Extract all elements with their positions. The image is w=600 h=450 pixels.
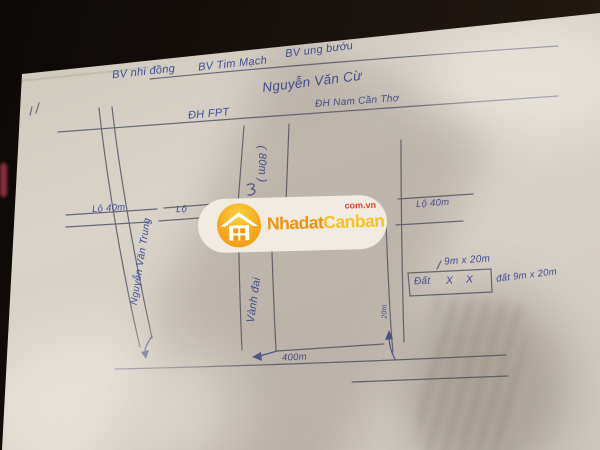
label-depth-20m: 20m (382, 297, 389, 327)
house-icon (216, 203, 261, 248)
watermark-brand-part1: Nhadat (267, 212, 324, 233)
label-lo-40m-left: Lộ 40m (92, 202, 126, 215)
watermark-brand: NhadatCanban (267, 211, 385, 235)
label-lo-40m-right: Lộ 40m (416, 197, 450, 210)
label-plot-x-marks: X X (446, 273, 479, 287)
paper-sheet: BV nhi đồng BV Tim Mạch BV ung bướu Nguy… (0, 0, 600, 450)
watermark-brand-part2: Canban (323, 211, 385, 233)
watermark-badge: NhadatCanban com.vn (197, 195, 387, 254)
photo-of-hand-drawn-land-map: BV nhi đồng BV Tim Mạch BV ung bướu Nguy… (0, 0, 600, 450)
label-length-400m: 400m (282, 351, 308, 363)
label-plot-word: Đất (414, 276, 431, 288)
watermark-domain: com.vn (344, 200, 376, 211)
label-lo-mid: Lộ (176, 204, 188, 216)
label-road-width-80m: ( 80m ) (256, 132, 268, 196)
watermark-logo-circle (216, 203, 261, 248)
red-paint-mark (0, 163, 7, 197)
